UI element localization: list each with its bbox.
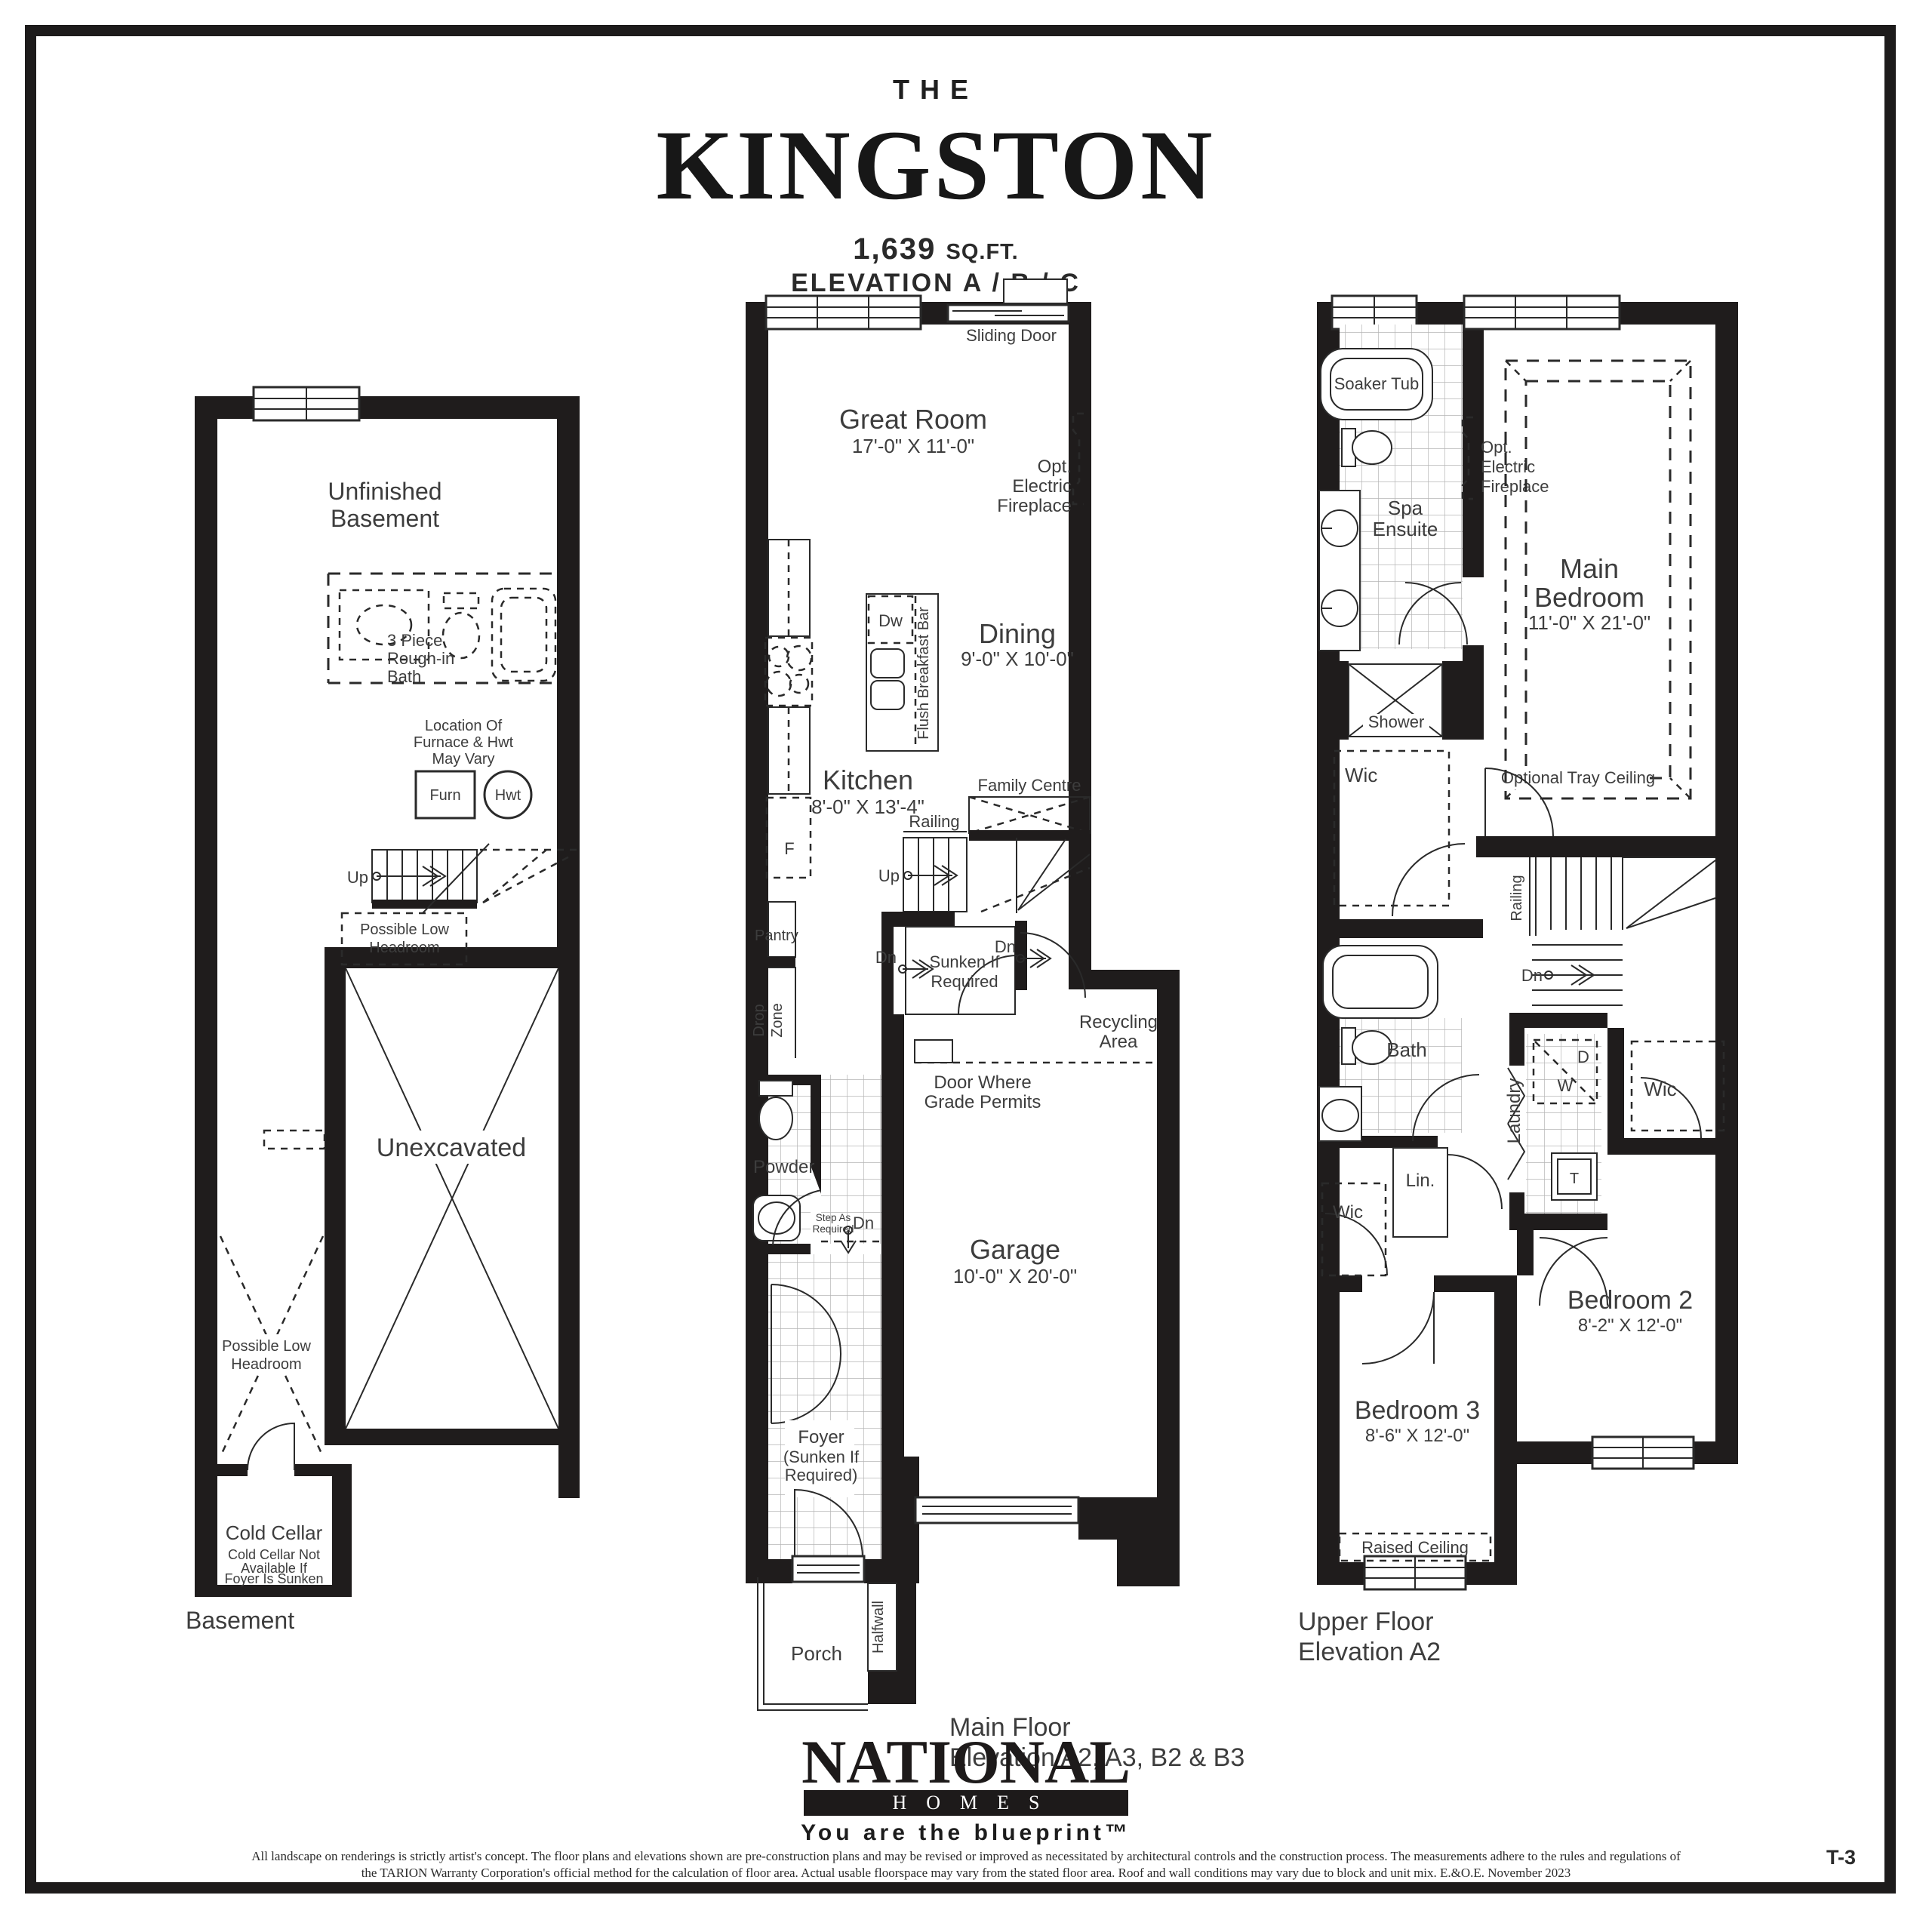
garage-door bbox=[915, 1497, 1078, 1523]
dining-dim: 9'-0" X 10'-0" bbox=[961, 648, 1074, 670]
garage-dim: 10'-0" X 20'-0" bbox=[953, 1265, 1077, 1287]
wic-bed3-label: Wic bbox=[1333, 1202, 1363, 1223]
upper-floor-plan: Soaker Tub Spa Ensuite Opt. Electric Fir… bbox=[1298, 296, 1738, 1666]
main-stairs bbox=[881, 832, 1090, 927]
bed3-label: Bedroom 3 bbox=[1355, 1396, 1480, 1425]
great-room-label: Great Room bbox=[839, 404, 987, 435]
mf-fireplace-l1: Opt. bbox=[1038, 457, 1072, 477]
sliding-door-label: Sliding Door bbox=[966, 326, 1057, 345]
family-centre-label: Family Centre bbox=[978, 776, 1081, 795]
mf-fireplace-l3: Fireplace bbox=[997, 496, 1072, 516]
dining-label: Dining bbox=[979, 618, 1056, 649]
sink-icon bbox=[871, 649, 904, 678]
main-window bbox=[766, 296, 921, 329]
upper-caption-l1: Upper Floor bbox=[1298, 1607, 1434, 1636]
uf-fireplace-l3: Fireplace bbox=[1481, 477, 1549, 496]
powder-label: Powder bbox=[753, 1157, 814, 1177]
bath-label-l3: Bath bbox=[387, 667, 421, 686]
floor-plans-drawing: 3 Piece Rough-in Bath Location Of Furnac… bbox=[0, 0, 1932, 1932]
upper-stairs bbox=[1530, 857, 1715, 1005]
raised-ceiling-label: Raised Ceiling bbox=[1361, 1538, 1469, 1557]
step-l2: Required bbox=[813, 1223, 854, 1235]
grade-door bbox=[915, 1040, 952, 1063]
step-l1: Step As bbox=[816, 1212, 851, 1223]
national-homes-logo: NATIONAL bbox=[777, 1727, 1155, 1798]
up-label: Up bbox=[347, 868, 368, 887]
sliding-door bbox=[948, 279, 1069, 321]
unfinished-l2: Basement bbox=[331, 505, 439, 532]
bed2-label: Bedroom 2 bbox=[1567, 1286, 1693, 1315]
spa-l1: Spa bbox=[1388, 497, 1423, 519]
furnace-note-l3: May Vary bbox=[432, 751, 495, 768]
spa-ensuite bbox=[1319, 325, 1467, 651]
porch-label: Porch bbox=[791, 1642, 842, 1665]
tub-icon bbox=[492, 589, 555, 681]
uf-fireplace-l1: Opt. bbox=[1481, 438, 1512, 457]
washer-label: W bbox=[1558, 1076, 1574, 1095]
cold-cellar-door-arc bbox=[248, 1423, 294, 1470]
toilet-icon bbox=[1342, 429, 1392, 466]
cold-note-l1: Cold Cellar Not bbox=[228, 1547, 320, 1562]
upper-caption-l2: Elevation A2 bbox=[1298, 1638, 1441, 1666]
furnace-label: Furn bbox=[429, 787, 460, 804]
sink-icon bbox=[753, 1195, 800, 1241]
drop-zone-l1: Drop bbox=[751, 1004, 768, 1036]
shower-label: Shower bbox=[1368, 712, 1425, 731]
kitchen-label: Kitchen bbox=[823, 764, 913, 795]
bed3-door-arc bbox=[1362, 1292, 1434, 1364]
notch bbox=[264, 1131, 325, 1149]
dn-left-label: Dn bbox=[875, 948, 897, 967]
floor-plan-sheet: THE KINGSTON 1,639 SQ.FT. ELEVATION A / … bbox=[0, 0, 1932, 1932]
garage-label: Garage bbox=[970, 1234, 1060, 1265]
cooktop-icon bbox=[765, 638, 812, 706]
homes-logo-bar: HOMES bbox=[804, 1790, 1128, 1816]
sink-icon bbox=[1319, 1087, 1361, 1141]
grade-l1: Door Where bbox=[934, 1072, 1031, 1093]
basement-caption: Basement bbox=[186, 1607, 294, 1634]
laundry-label: Laundry bbox=[1504, 1078, 1524, 1144]
main-floor-plan: Sliding Door Great Room 17'-0" X 11'-0" … bbox=[746, 279, 1244, 1772]
flush-bar-label: Flush Breakfast Bar bbox=[915, 607, 932, 740]
kitchen-counter bbox=[765, 540, 812, 878]
headroom1-l1: Possible Low bbox=[360, 921, 449, 938]
sink-icon bbox=[871, 681, 904, 709]
main-bed-l2: Bedroom bbox=[1534, 582, 1644, 613]
step-dn-label: Dn bbox=[853, 1214, 874, 1232]
toilet-icon bbox=[759, 1081, 792, 1140]
kitchen-dim: 8'-0" X 13'-4" bbox=[811, 795, 924, 818]
bath-label: Bath bbox=[1386, 1038, 1427, 1061]
headroom2-l1: Possible Low bbox=[222, 1338, 311, 1355]
unfinished-l1: Unfinished bbox=[328, 478, 441, 505]
great-room-dim: 17'-0" X 11'-0" bbox=[852, 435, 974, 457]
wic-bed2-label: Wic bbox=[1644, 1078, 1676, 1100]
hwt-label: Hwt bbox=[495, 787, 521, 804]
sheet-number: T-3 bbox=[1826, 1846, 1856, 1869]
disclaimer-line2: the TARION Warranty Corporation's offici… bbox=[211, 1866, 1721, 1881]
mf-fireplace-l2: Electric bbox=[1012, 476, 1072, 497]
furnace-note-l2: Furnace & Hwt bbox=[414, 734, 514, 751]
bed2-dim: 8'-2" X 12'-0" bbox=[1578, 1315, 1682, 1336]
bed3-dim: 8'-6" X 12'-0" bbox=[1365, 1426, 1469, 1446]
grade-l2: Grade Permits bbox=[924, 1092, 1041, 1112]
recycling-l1: Recycling bbox=[1079, 1012, 1158, 1032]
furnace-note-l1: Location Of bbox=[425, 718, 503, 734]
dryer-label: D bbox=[1577, 1048, 1589, 1066]
soaker-tub-label: Soaker Tub bbox=[1334, 374, 1420, 393]
foyer-l2: (Sunken If bbox=[783, 1447, 860, 1466]
unexcavated-label: Unexcavated bbox=[377, 1134, 526, 1162]
fridge-label: F bbox=[784, 839, 794, 858]
spa-l2: Ensuite bbox=[1373, 518, 1438, 540]
drop-zone-l2: Zone bbox=[769, 1003, 786, 1038]
logo-tagline: You are the blueprint™ bbox=[777, 1820, 1155, 1846]
tub-icon bbox=[1323, 946, 1438, 1018]
headroom2-l2: Headroom bbox=[231, 1356, 301, 1373]
bath-label-l2: Rough-in bbox=[387, 649, 454, 668]
basement-stairs bbox=[372, 844, 577, 913]
fridge-icon bbox=[767, 798, 811, 878]
basement-plan: 3 Piece Rough-in Bath Location Of Furnac… bbox=[186, 387, 580, 1634]
halfwall-label: Halfwall bbox=[870, 1601, 887, 1654]
sunken-l1: Sunken If bbox=[930, 952, 1001, 971]
vanity-sinks bbox=[1319, 491, 1360, 651]
bath-label-l1: 3 Piece bbox=[387, 631, 442, 650]
headroom1-l2: Headroom bbox=[369, 940, 439, 956]
wic-main-label: Wic bbox=[1345, 764, 1377, 786]
disclaimer-line1: All landscape on renderings is strictly … bbox=[211, 1849, 1721, 1864]
foyer-l3: Required) bbox=[785, 1466, 858, 1484]
lin-label: Lin. bbox=[1406, 1171, 1435, 1191]
tray-label: Optional Tray Ceiling bbox=[1501, 768, 1655, 787]
uf-railing-label: Railing bbox=[1509, 875, 1525, 921]
main-bed-l1: Main bbox=[1560, 553, 1619, 584]
dn-right-label: Dn bbox=[995, 937, 1016, 956]
main-bed-dim: 11'-0" X 21'-0" bbox=[1528, 611, 1651, 634]
basement-walls bbox=[195, 396, 580, 1597]
basement-window bbox=[254, 387, 359, 420]
mf-up-label: Up bbox=[878, 866, 900, 885]
pantry-label: Pantry bbox=[755, 928, 798, 944]
dw-label: Dw bbox=[878, 611, 903, 630]
tub-label: T bbox=[1570, 1171, 1579, 1187]
cold-cellar-label: Cold Cellar bbox=[226, 1521, 323, 1544]
foyer bbox=[768, 1254, 881, 1582]
mf-railing-label: Railing bbox=[909, 812, 959, 831]
linen-closet bbox=[1393, 1148, 1502, 1237]
foyer-l1: Foyer bbox=[798, 1427, 844, 1447]
unexcavated-area bbox=[346, 968, 558, 1429]
recycling-l2: Area bbox=[1100, 1032, 1138, 1052]
cold-note-l3: Foyer Is Sunken bbox=[224, 1571, 323, 1586]
uf-dn-label: Dn bbox=[1521, 966, 1543, 985]
sunken-l2: Required bbox=[931, 972, 998, 991]
